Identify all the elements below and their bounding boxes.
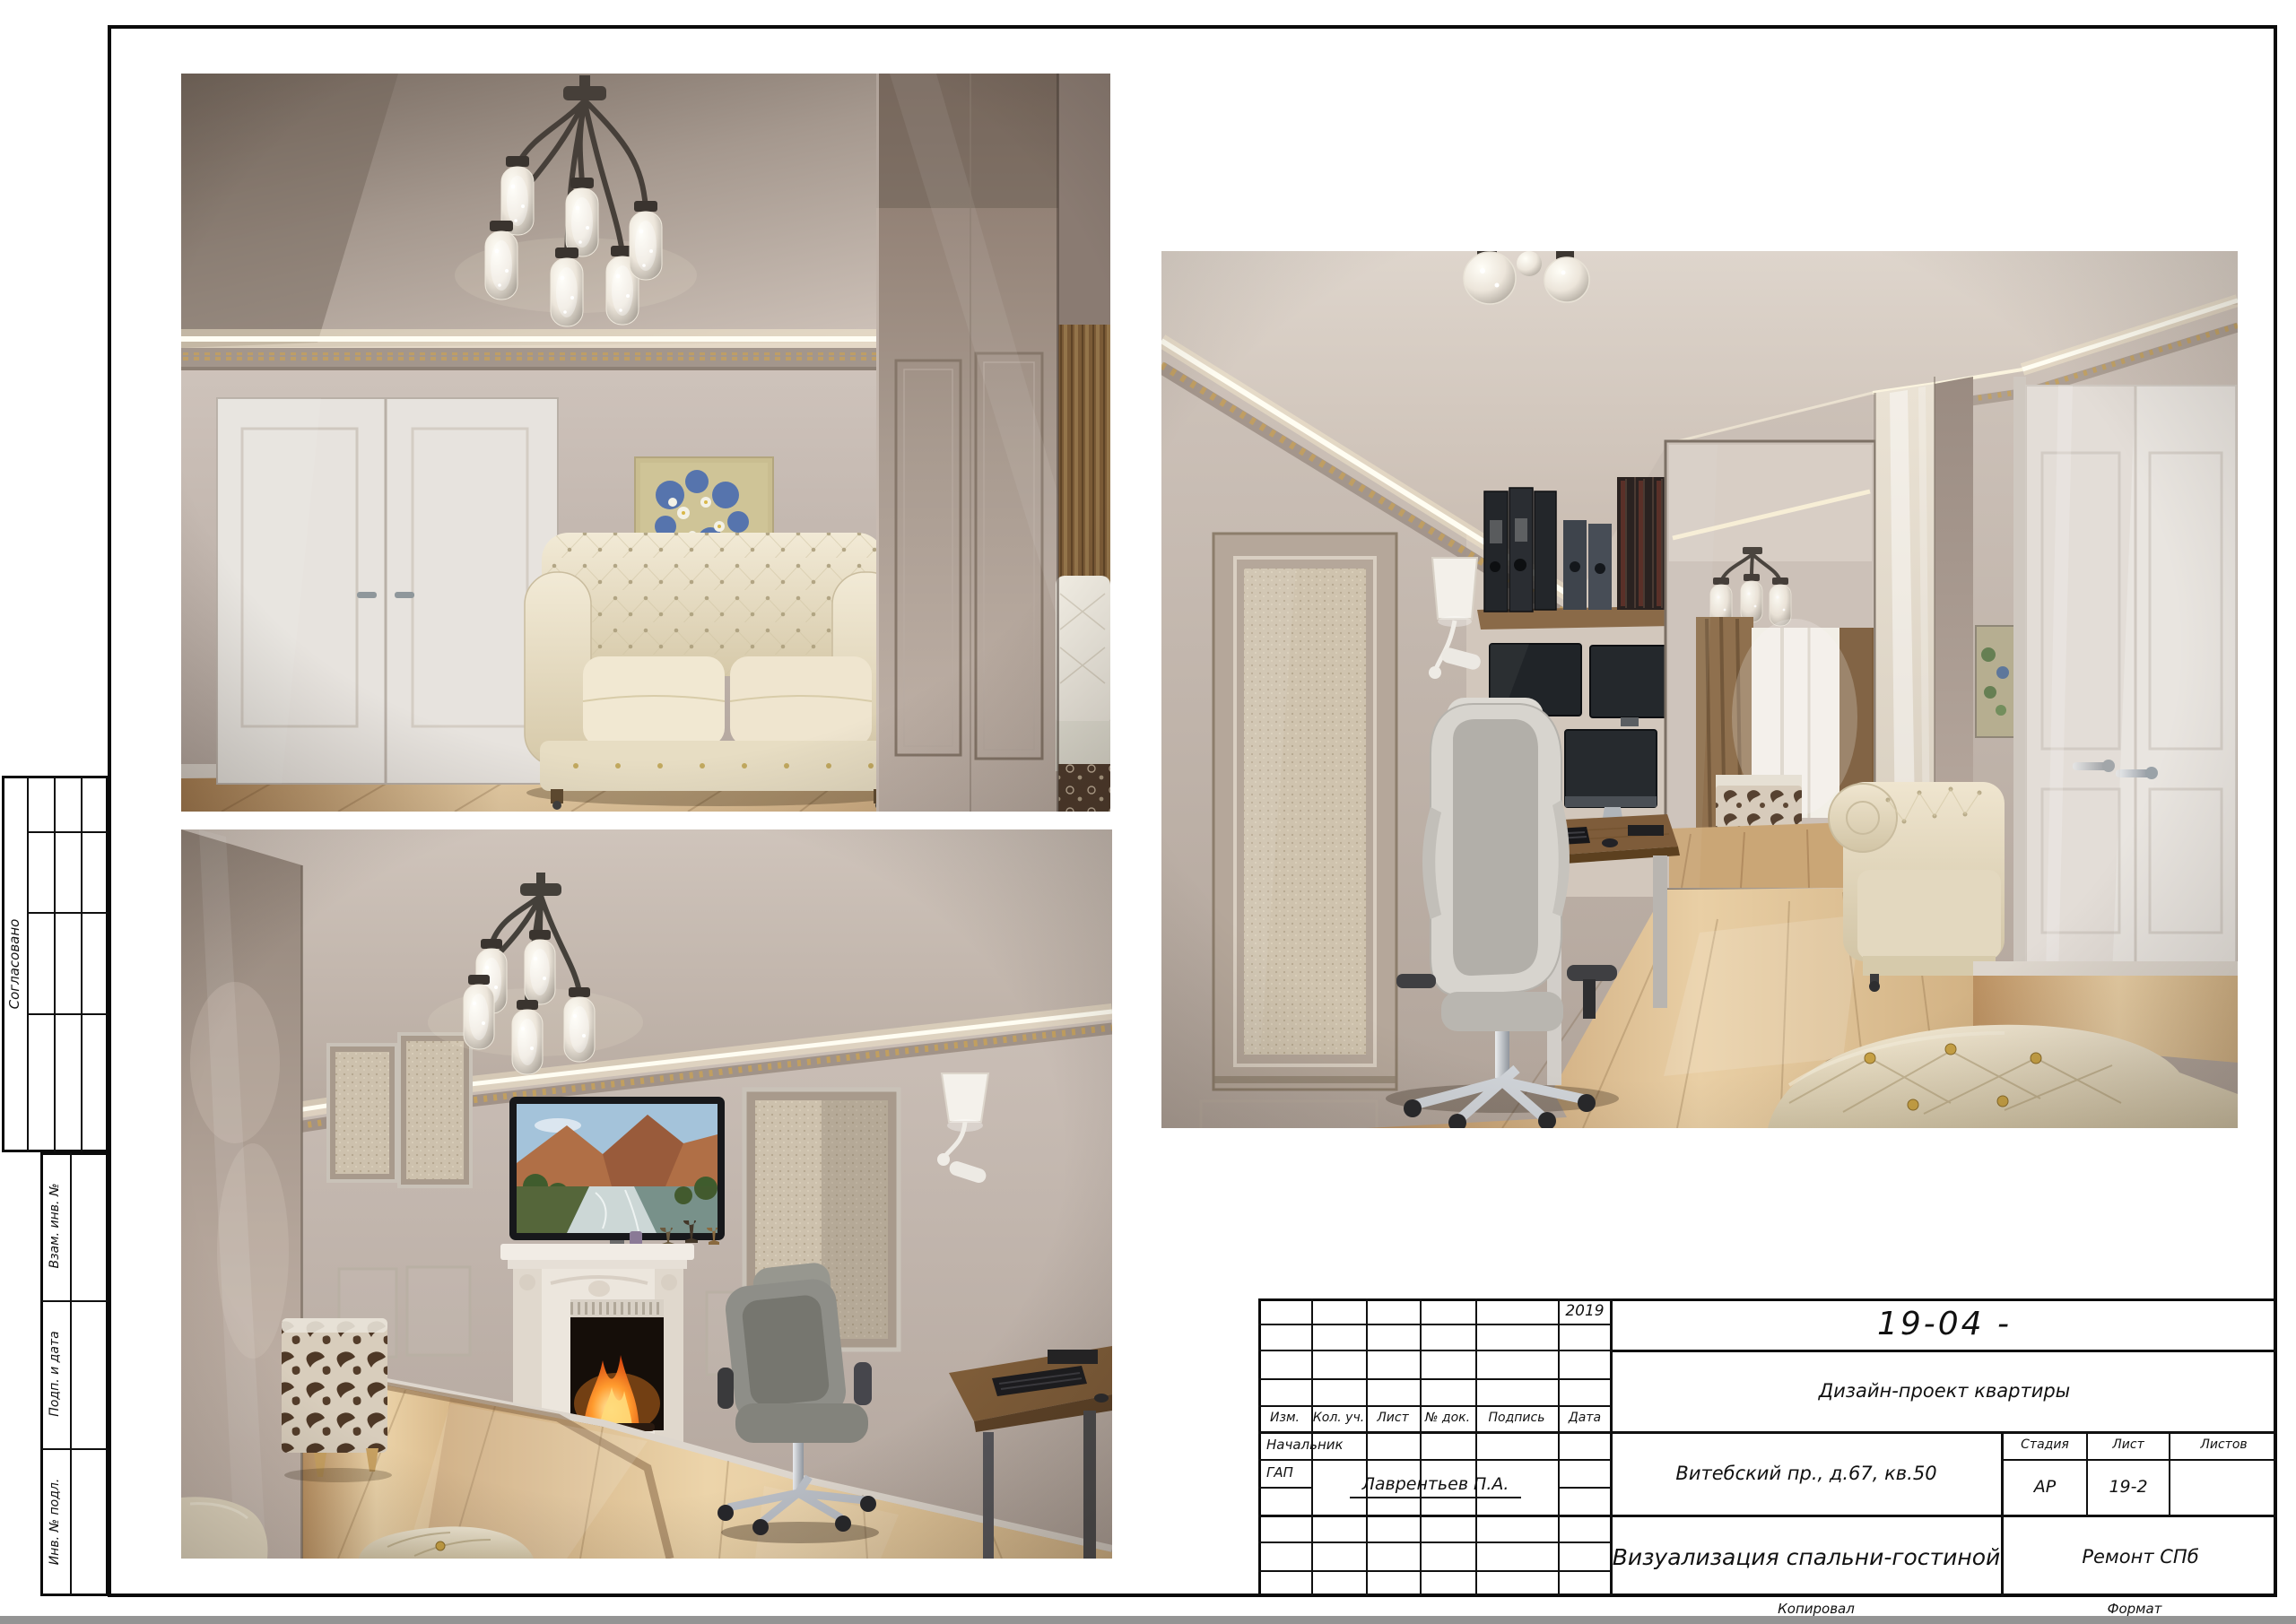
grid-line [1420, 1298, 1422, 1596]
grid-line [1258, 1487, 1313, 1489]
grid-line [40, 1300, 109, 1302]
gap-name: Лаврентьев П.А. [1350, 1475, 1522, 1498]
role-nachalnik: Начальник [1259, 1431, 1367, 1459]
sheet-number: 19-2 [2088, 1459, 2169, 1515]
render-bedroom-sofa-view [181, 74, 1110, 812]
grid-line [1258, 1324, 1612, 1325]
grid-line [1558, 1298, 1560, 1596]
object-address: Витебский пр., д.67, кв.50 [1612, 1434, 2001, 1515]
grid-line [70, 1152, 72, 1596]
grid-line [27, 1013, 109, 1015]
rev-header-doc: № док. [1420, 1405, 1475, 1431]
vignette-overlay [1161, 251, 2238, 1128]
drawing-sheet: Согласовано Взам. инв. № Подп. и дата Ин… [0, 0, 2296, 1624]
gap-name-cell: Лаврентьев П.А. [1313, 1459, 1558, 1515]
render-home-office-view [1161, 251, 2238, 1128]
rev-header-izm: Изм. [1258, 1405, 1311, 1431]
grid-line [1258, 1350, 1612, 1351]
rev-header-kol: Кол. уч. [1311, 1405, 1366, 1431]
vignette-overlay [181, 829, 1112, 1559]
vzam-label: Взам. инв. № [41, 1172, 68, 1280]
rev-header-podpis: Подпись [1475, 1405, 1558, 1431]
company-name: Ремонт СПб [2004, 1517, 2277, 1597]
fireplace-room-scene [181, 829, 1112, 1559]
podp-label: Подп. и дата [41, 1320, 68, 1428]
sheet-label: Лист [2088, 1431, 2169, 1459]
grid-line [1258, 1378, 1612, 1380]
rev-header-list: Лист [1366, 1405, 1420, 1431]
grid-line [1258, 1570, 1612, 1572]
drawing-title: Визуализация спальни-гостиной [1612, 1517, 2001, 1597]
grid-line [40, 1448, 109, 1450]
project-name: Дизайн-проект квартиры [1612, 1352, 2277, 1431]
screenshot-bottom-edge [0, 1616, 2296, 1624]
sofa-room-scene [181, 74, 1110, 812]
grid-line [1475, 1298, 1477, 1596]
agreed-label: Согласовано [1, 897, 28, 1031]
rev-header-data: Дата [1558, 1405, 1612, 1431]
grid-line [27, 912, 109, 914]
project-code: 19-04 - [1612, 1298, 2277, 1350]
stage-value: АР [2004, 1459, 2086, 1515]
sheets-label: Листов [2170, 1431, 2277, 1459]
year-value: 2019 [1558, 1298, 1612, 1324]
grid-line [1558, 1487, 1612, 1489]
grid-line [27, 831, 109, 833]
stage-label: Стадия [2004, 1431, 2086, 1459]
home-office-scene [1161, 251, 2238, 1128]
render-tv-fireplace-view [181, 829, 1112, 1559]
grid-line [1258, 1541, 1612, 1543]
vignette-overlay [181, 74, 1110, 812]
inv-label: Инв. № подл. [41, 1468, 68, 1576]
